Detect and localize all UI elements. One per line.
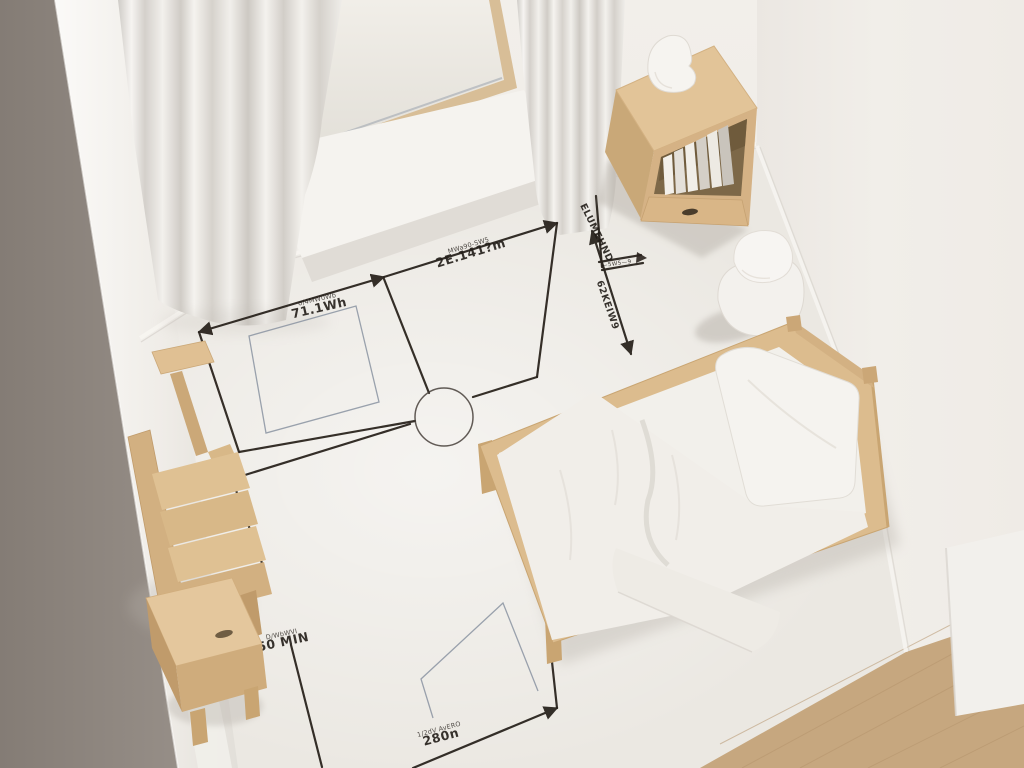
wall-pillar <box>946 530 1024 716</box>
table-leg <box>244 686 260 720</box>
scene-canvas: σ/4MW0Wb 71.1Wh MWa90-SW5 2Ε.141?m 62KEI… <box>0 0 1024 768</box>
headboard-post <box>862 366 878 384</box>
table-leg <box>190 708 208 746</box>
bedroom-scene: σ/4MW0Wb 71.1Wh MWa90-SW5 2Ε.141?m 62KEI… <box>0 0 1024 768</box>
table-lamp <box>648 35 696 92</box>
headboard-post <box>786 315 802 332</box>
stool-top <box>734 230 793 282</box>
